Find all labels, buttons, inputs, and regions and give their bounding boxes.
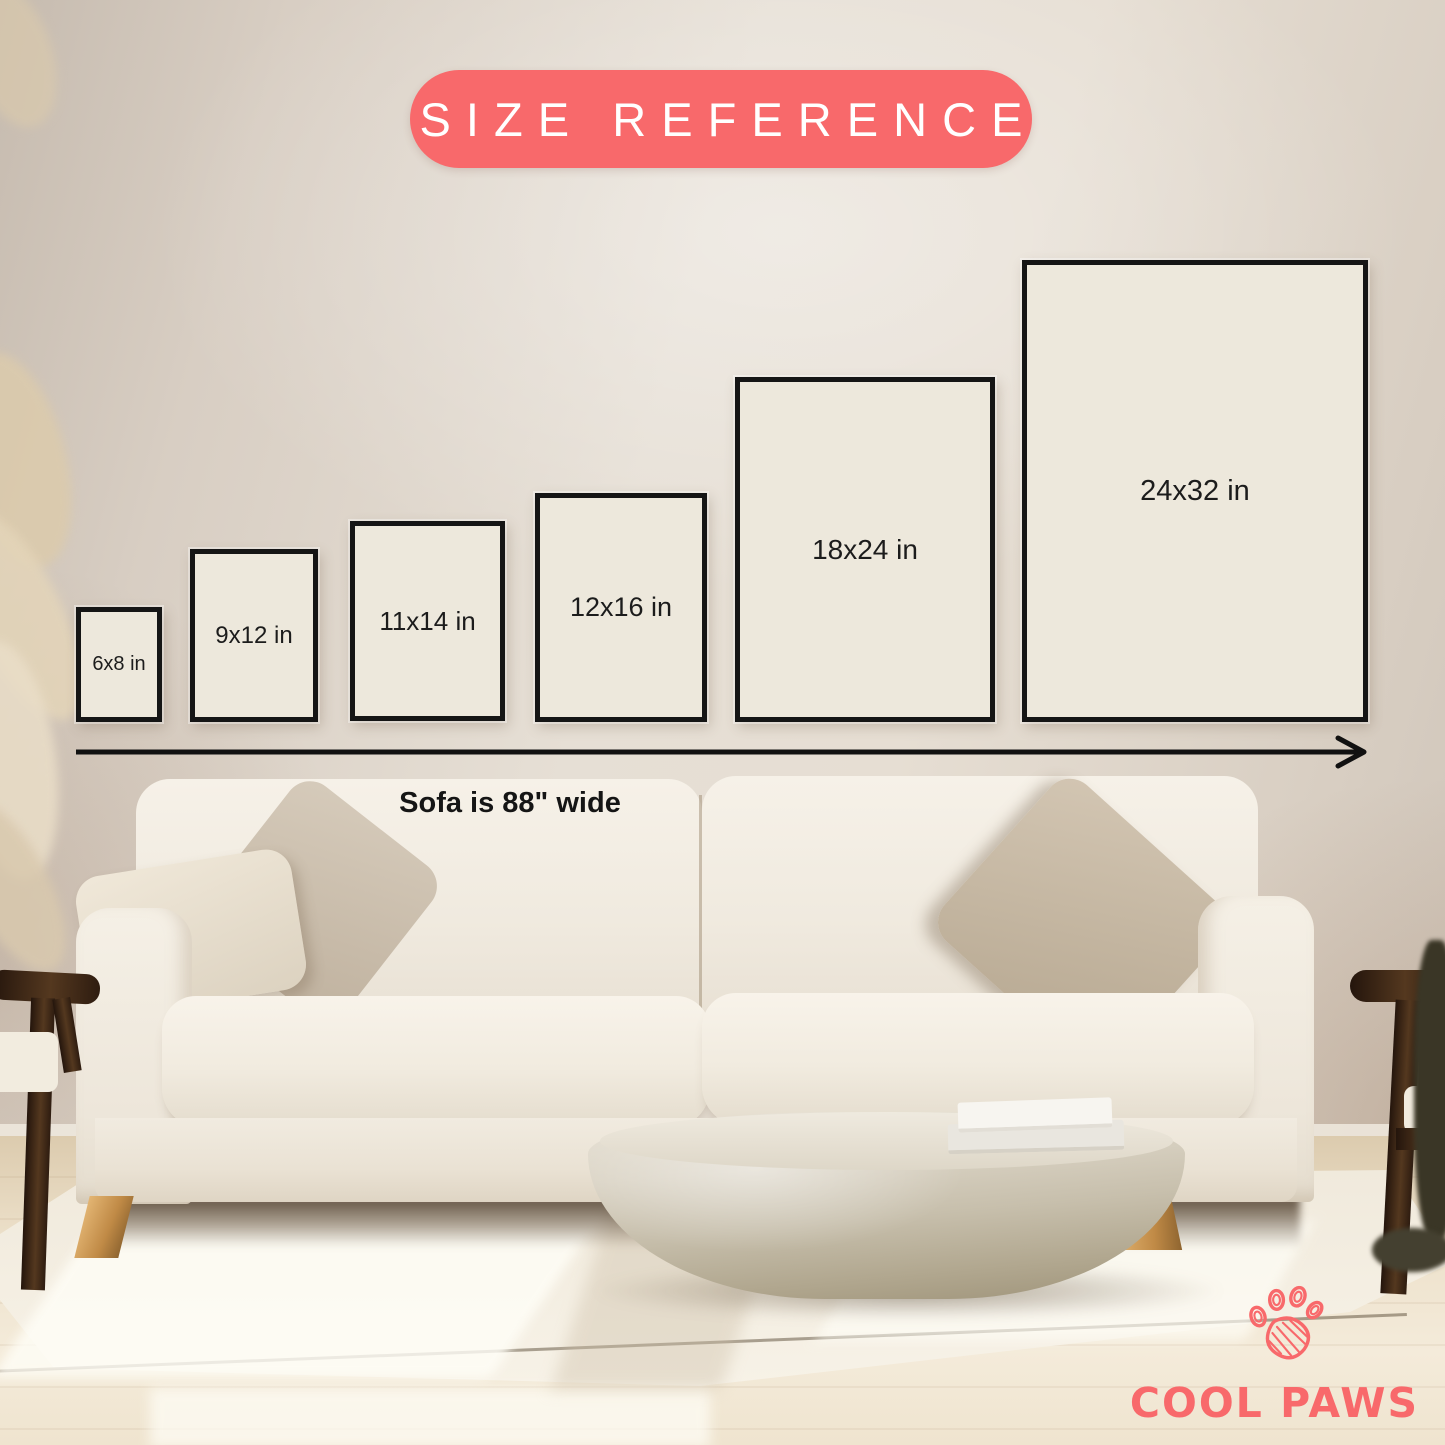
size-box-6x8: 6x8 in bbox=[76, 607, 162, 722]
size-box-12x16: 12x16 in bbox=[535, 493, 707, 722]
size-box-18x24: 18x24 in bbox=[735, 377, 995, 722]
size-box-9x12: 9x12 in bbox=[190, 549, 318, 722]
size-box-11x14: 11x14 in bbox=[350, 521, 505, 721]
left-chair-cushion bbox=[0, 1032, 58, 1092]
size-label: 11x14 in bbox=[379, 606, 475, 637]
living-room-scene bbox=[0, 0, 1445, 1445]
size-reference-badge: SIZE REFERENCE bbox=[410, 70, 1032, 168]
sofa-width-caption: Sofa is 88" wide bbox=[330, 787, 690, 820]
size-reference-mockup: SIZE REFERENCE 6x8 in 9x12 in 11x14 in 1… bbox=[0, 0, 1445, 1445]
dark-plant-leaves bbox=[1372, 1228, 1445, 1272]
width-arrow bbox=[70, 735, 1375, 769]
dark-plant bbox=[1414, 940, 1445, 1240]
sofa-seat-cushion-left bbox=[162, 996, 710, 1128]
size-label: 9x12 in bbox=[215, 622, 292, 650]
book-top bbox=[958, 1097, 1113, 1132]
sunlight-patch bbox=[150, 1388, 710, 1445]
paw-print-icon bbox=[1237, 1277, 1336, 1373]
size-label: 12x16 in bbox=[570, 592, 672, 623]
pampas-grass bbox=[0, 0, 73, 139]
brand-wordmark: COOL PAWS bbox=[1130, 1379, 1419, 1427]
size-label: 6x8 in bbox=[92, 653, 145, 676]
sofa-cushion-seam bbox=[699, 795, 702, 1030]
throw-pillow-taupe-right-body bbox=[950, 872, 1240, 1012]
size-box-24x32: 24x32 in bbox=[1022, 260, 1368, 722]
size-label: 18x24 in bbox=[812, 534, 918, 566]
badge-label: SIZE REFERENCE bbox=[420, 92, 1038, 147]
size-label: 24x32 in bbox=[1140, 475, 1250, 508]
